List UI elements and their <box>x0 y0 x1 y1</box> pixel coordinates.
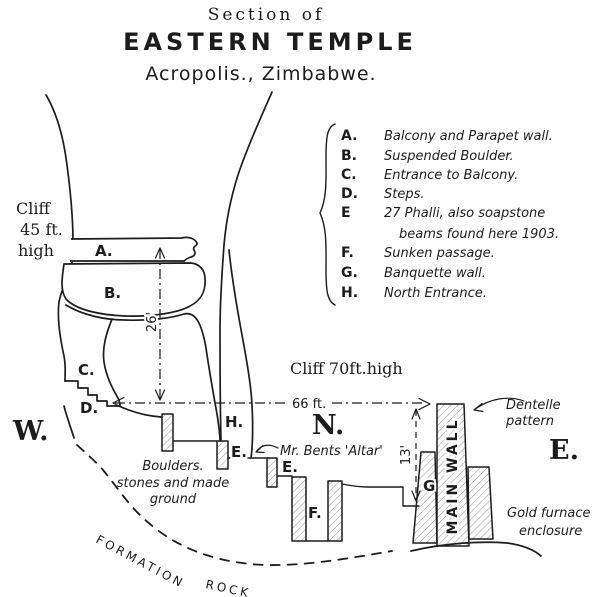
enclosure-wall <box>468 467 493 539</box>
legend-key-g: G. <box>341 265 358 281</box>
sunken-passage-pillar-1 <box>292 477 306 541</box>
legend-desc-h: North Entrance. <box>384 286 487 301</box>
compass-east: E. <box>549 435 579 466</box>
legend-key-b: B. <box>341 148 357 164</box>
floor-line-4 <box>342 484 419 506</box>
ground-line-west <box>119 406 161 417</box>
gold-furnace-note-line1: Gold furnace <box>507 506 591 521</box>
legend-brace <box>320 124 335 305</box>
suspended-boulder-b <box>62 263 205 316</box>
boulders-note-line3: ground <box>150 492 197 507</box>
legend-key-a: A. <box>341 128 357 144</box>
cliff-west-line1: Cliff <box>16 199 51 218</box>
legend: A. Balcony and Parapet wall. B. Suspende… <box>341 128 559 301</box>
compass-north: N. <box>312 410 344 441</box>
cliff-north-label: Cliff 70ft.high <box>290 359 403 378</box>
retaining-wall-1 <box>162 414 173 451</box>
legend-desc-c: Entrance to Balcony. <box>384 168 518 183</box>
west-cliff-outline-lower <box>64 406 74 438</box>
point-label-e-lower: E. <box>282 458 298 476</box>
altar-note: Mr. Bents 'Altar' <box>280 444 383 459</box>
cliff-west-line3: high <box>18 241 54 260</box>
dentelle-note-line1: Dentelle <box>506 398 561 413</box>
legend-desc-e: 27 Phalli, also soapstone <box>384 206 545 221</box>
altar-block-e <box>267 458 277 487</box>
sunken-passage-pillar-2 <box>328 481 342 541</box>
point-label-d: D. <box>80 399 98 417</box>
title-line1: Section of <box>208 5 325 25</box>
legend-key-d: D. <box>341 186 358 202</box>
legend-key-f: F. <box>341 245 354 261</box>
legend-key-e: E <box>341 205 351 221</box>
main-wall-label: MAIN WALL <box>445 417 461 534</box>
title-line3: Acropolis., Zimbabwe. <box>145 63 376 85</box>
legend-desc-b: Suspended Boulder. <box>384 149 514 164</box>
formation-rock-word2: ROCK <box>204 577 252 597</box>
legend-desc-e-line2: beams found here 1903. <box>399 227 559 242</box>
boulders-note-line1: Boulders. <box>142 459 203 474</box>
legend-key-h: H. <box>341 285 358 301</box>
balcony-parapet-a <box>70 237 197 261</box>
gold-furnace-note-line2: enclosure <box>519 524 582 539</box>
cliff-west-line2: 45 ft. <box>20 220 63 239</box>
point-label-a: A. <box>95 242 113 260</box>
title-line2: EASTERN TEMPLE <box>123 28 417 56</box>
retaining-wall-2 <box>217 441 228 469</box>
boulders-note-line2: stones and made <box>117 476 229 491</box>
dim-26-label: 26' <box>145 312 160 332</box>
compass-west: W. <box>12 416 49 447</box>
north-cliff-outline-left <box>220 92 272 441</box>
altar-arrow <box>256 445 278 452</box>
legend-desc-f: Sunken passage. <box>384 246 495 261</box>
point-label-g: G <box>423 477 435 495</box>
dim-66-arrow-right <box>419 399 430 410</box>
point-label-c: C. <box>78 361 95 379</box>
section-diagram-page: Section of EASTERN TEMPLE Acropolis., Zi… <box>0 0 600 597</box>
legend-desc-a: Balcony and Parapet wall. <box>384 129 553 144</box>
dim-13-label: 13' <box>399 445 414 465</box>
legend-desc-g: Banquette wall. <box>384 266 486 281</box>
ground-line-east <box>411 542 541 556</box>
section-drawing: Section of EASTERN TEMPLE Acropolis., Zi… <box>0 0 600 597</box>
point-label-h: H. <box>225 413 243 431</box>
dentelle-note-line2: pattern <box>505 414 554 429</box>
point-label-f: F. <box>308 504 322 522</box>
legend-desc-d: Steps. <box>384 187 425 202</box>
point-label-b: B. <box>104 284 121 302</box>
entrance-c-outline <box>103 319 120 406</box>
legend-key-c: C. <box>341 167 357 183</box>
point-label-e-upper: E. <box>231 443 247 461</box>
